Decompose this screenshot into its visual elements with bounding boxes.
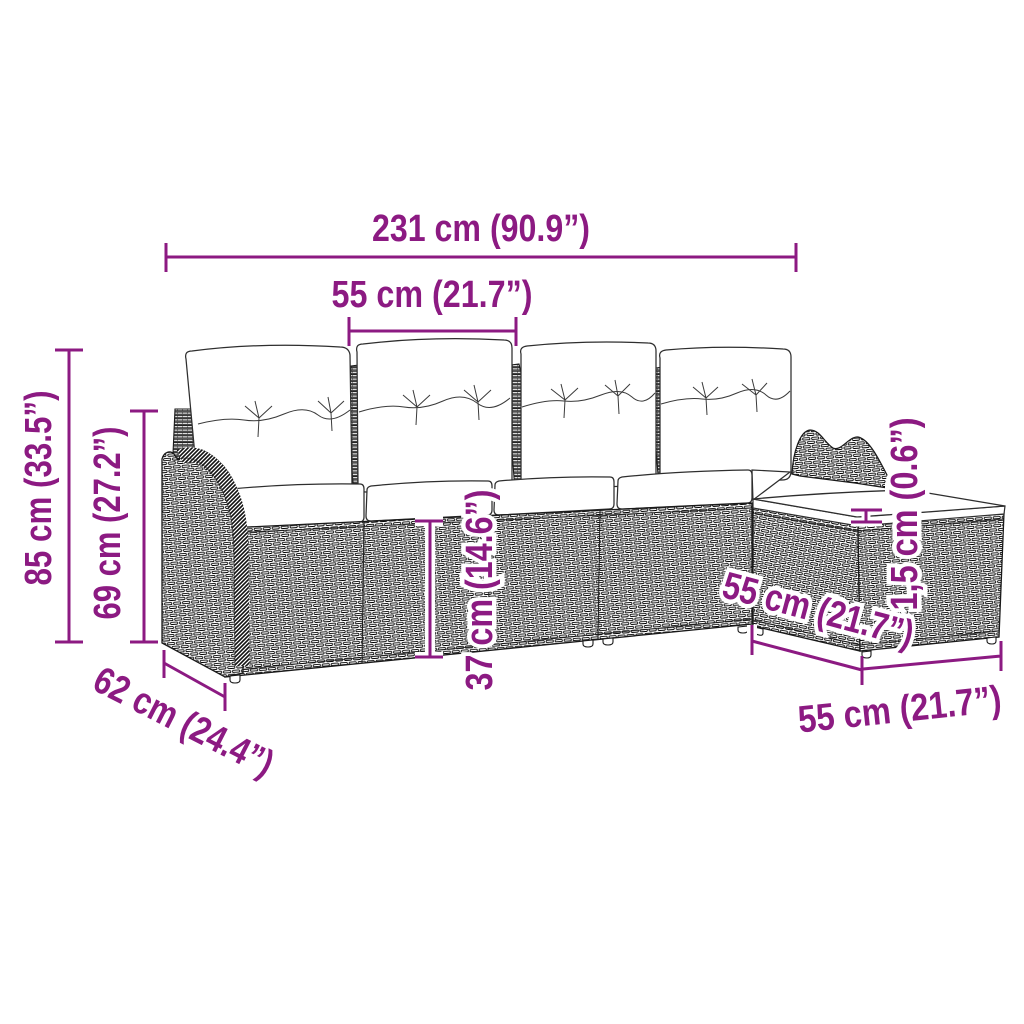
svg-text:85 cm (33.5”): 85 cm (33.5”) xyxy=(18,391,60,586)
svg-text:231 cm (90.9”): 231 cm (90.9”) xyxy=(372,208,590,250)
svg-text:69 cm (27.2”): 69 cm (27.2”) xyxy=(87,427,129,620)
svg-text:1,5 cm (0.6”): 1,5 cm (0.6”) xyxy=(884,418,926,611)
svg-text:55 cm (21.7”): 55 cm (21.7”) xyxy=(332,274,533,316)
svg-text:37 cm (14.6”): 37 cm (14.6”) xyxy=(459,490,501,691)
